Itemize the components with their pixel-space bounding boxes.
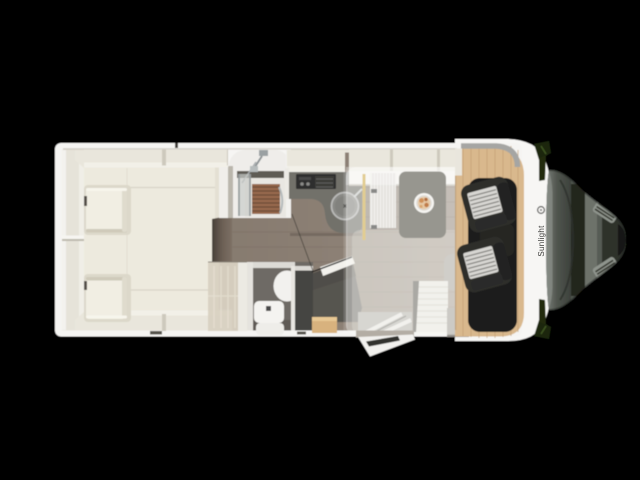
svg-text:Sunlight: Sunlight bbox=[537, 225, 546, 257]
